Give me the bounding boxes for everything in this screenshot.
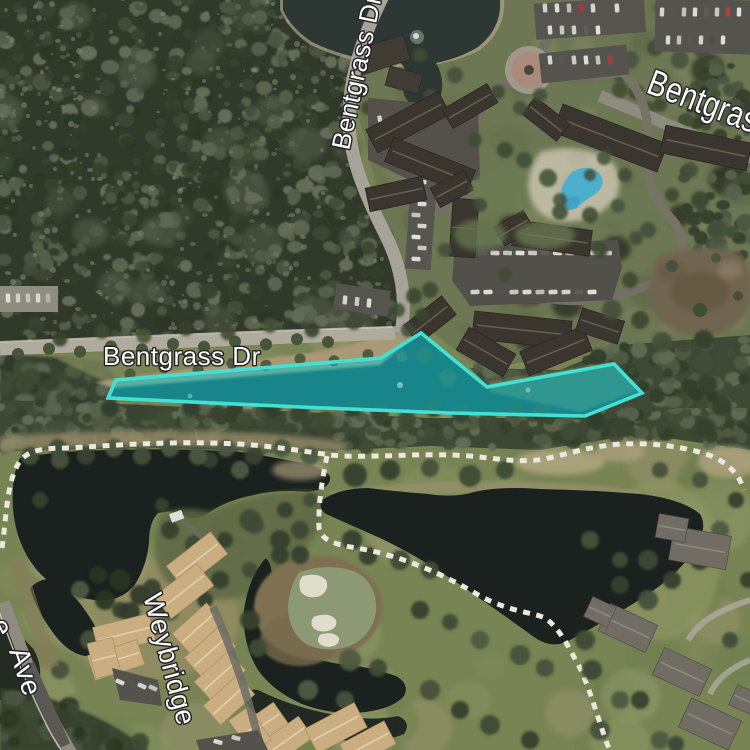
svg-text:Bentgrass Dr: Bentgrass Dr — [103, 341, 261, 371]
